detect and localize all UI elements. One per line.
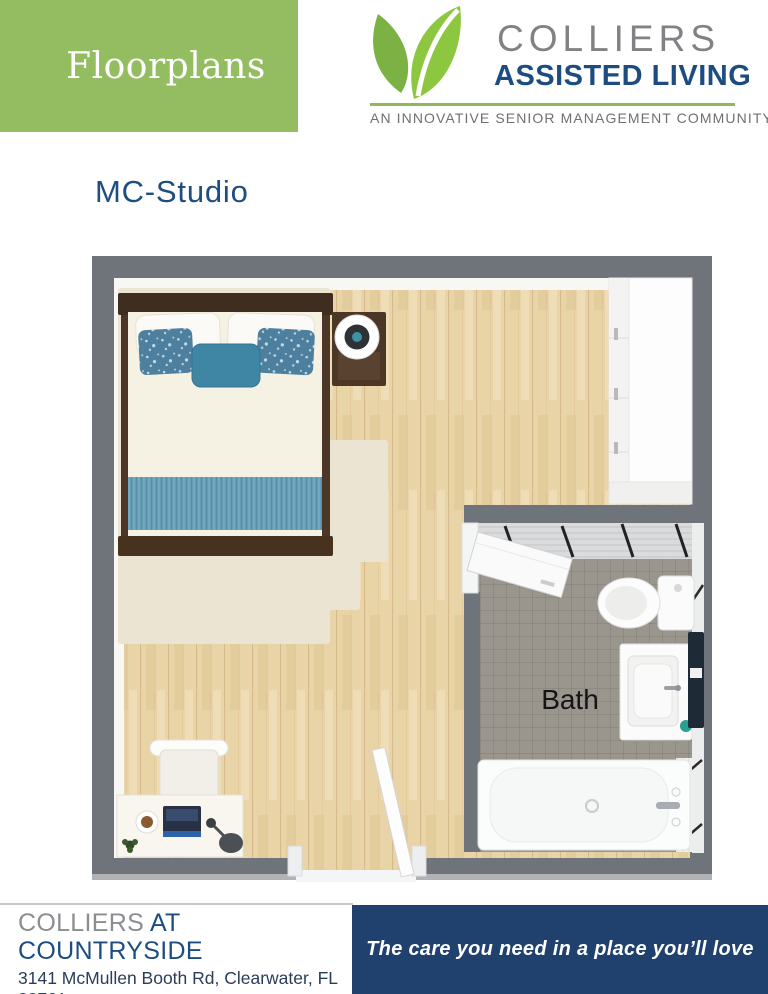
colliers-logo: COLLIERS ASSISTED LIVING AN INNOVATIVE S… (360, 0, 760, 140)
bathroom: Bath (462, 505, 712, 853)
wardrobe (609, 278, 692, 504)
logo-subtitle: ASSISTED LIVING (494, 60, 751, 93)
footer-tagline: The care you need in a place you’ll love (366, 938, 754, 961)
desk-chair (150, 740, 228, 800)
community-name: COLLIERS AT COUNTRYSIDE (18, 909, 348, 965)
plan-title: MC-Studio (95, 174, 249, 210)
logo-name: COLLIERS (497, 18, 720, 60)
flyer-page: Floorplans COLLIERS ASSISTED LIVING AN I… (0, 0, 768, 994)
community-name-primary: COLLIERS (18, 909, 144, 937)
footer-divider (0, 903, 353, 905)
table-lamp (335, 315, 379, 359)
bathtub (478, 758, 692, 852)
sink-vanity (620, 644, 692, 740)
two-leaves-icon (368, 4, 472, 104)
toilet (598, 576, 694, 630)
bed (118, 293, 333, 556)
footer-tagline-banner: The care you need in a place you’ll love (352, 905, 768, 994)
bath-label: Bath (541, 684, 599, 715)
contact-block: COLLIERS AT COUNTRYSIDE 3141 McMullen Bo… (18, 909, 348, 994)
community-address: 3141 McMullen Booth Rd, Clearwater, FL 3… (18, 968, 348, 994)
banner-title: Floorplans (66, 46, 266, 87)
floorplan-rendering: Bath (84, 250, 724, 890)
desk (117, 795, 243, 857)
logo-tagline: AN INNOVATIVE SENIOR MANAGEMENT COMMUNIT… (370, 110, 768, 126)
logo-divider (370, 103, 735, 106)
floorplans-banner: Floorplans (0, 0, 298, 132)
bathroom-mirror-shelf (688, 632, 704, 728)
